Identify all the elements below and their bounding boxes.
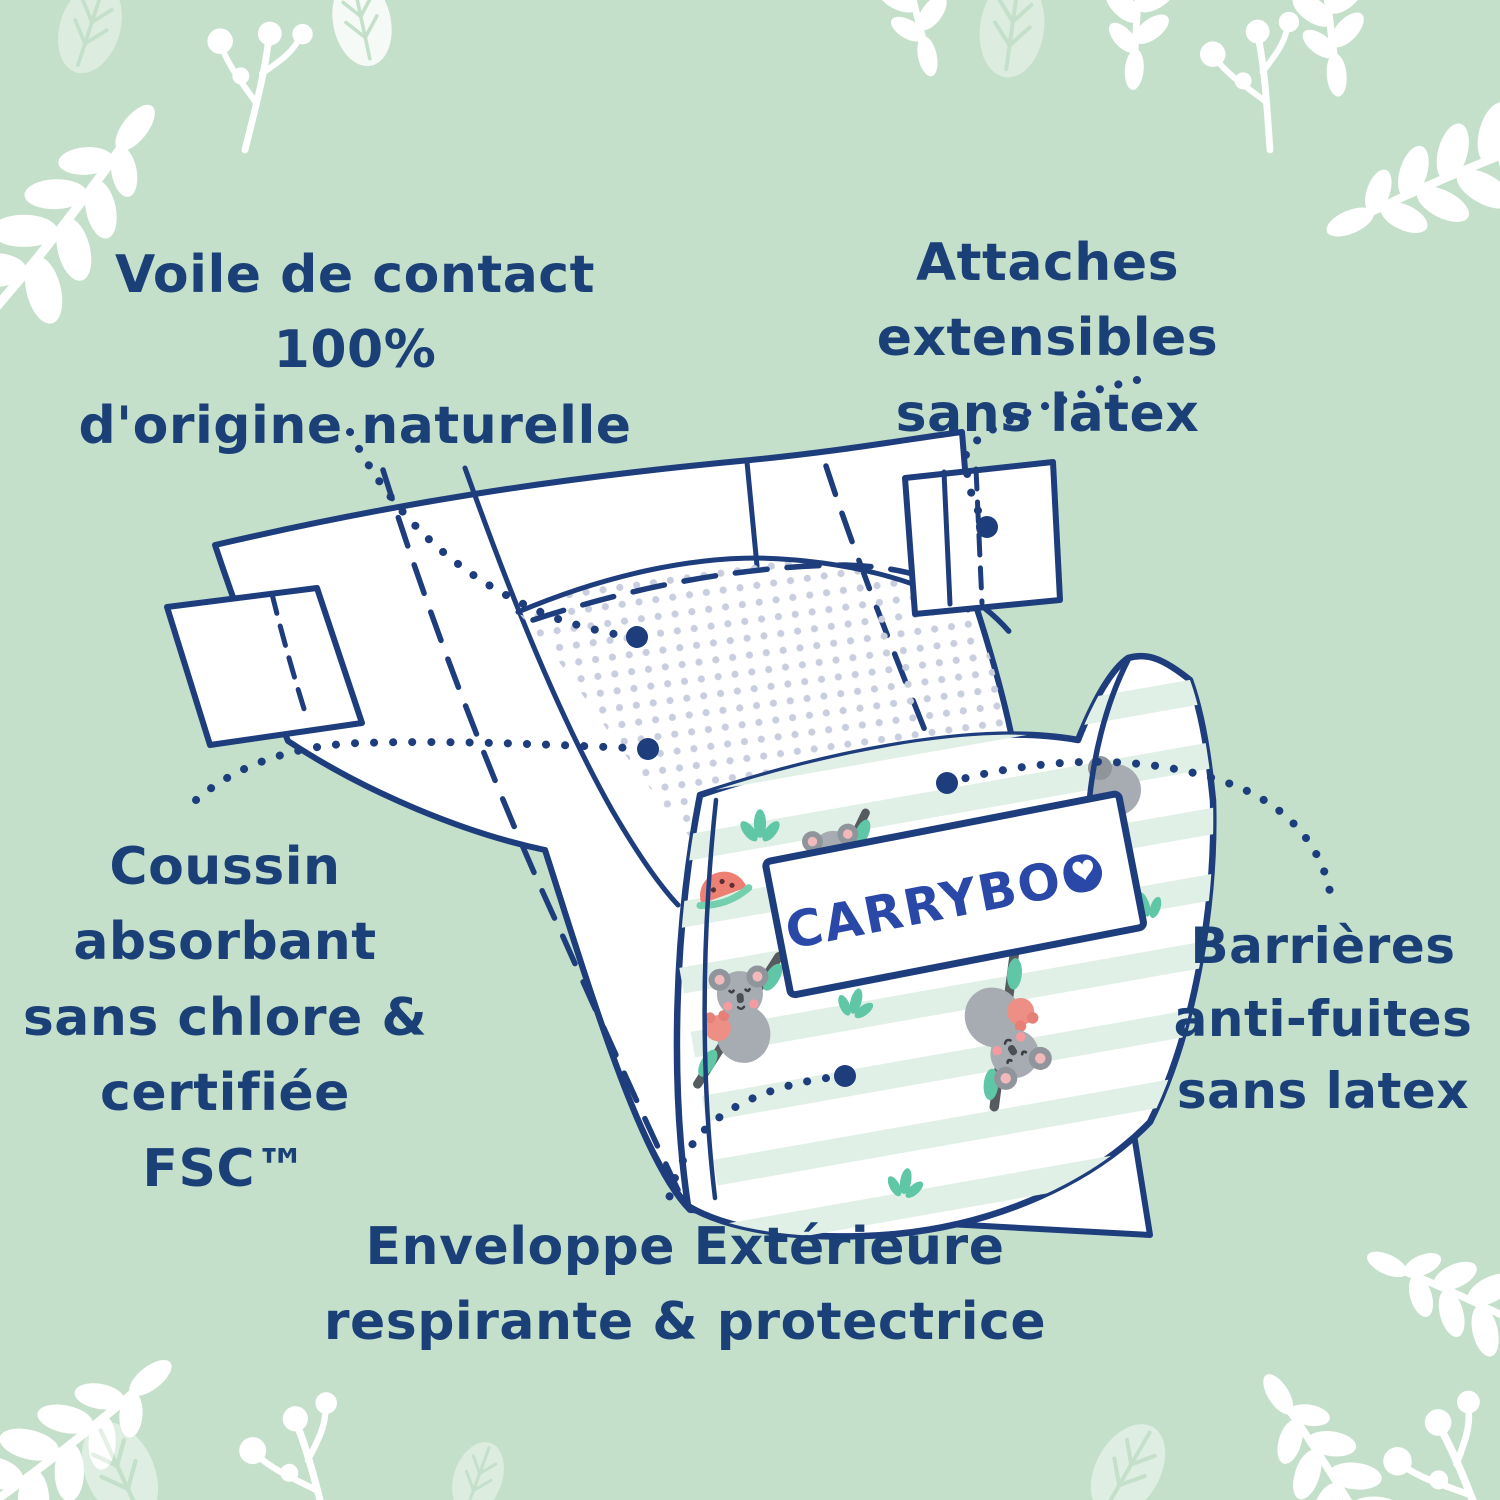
callout-leak-barriers: Barrières anti-fuites sans latex: [1158, 910, 1488, 1128]
callout-absorbent-core: Coussin absorbant sans chlore & certifié…: [10, 830, 440, 1207]
right-tab: [905, 462, 1060, 614]
callout-outer-shell: Enveloppe Extérieure respirante & protec…: [320, 1210, 1050, 1361]
diaper-features-infographic: CARRYBOO: [0, 0, 1500, 1500]
callout-top-sheet: Voile de contact 100% d'origine naturell…: [35, 238, 675, 464]
callout-fasteners: Attaches extensibles sans latex: [775, 226, 1320, 452]
